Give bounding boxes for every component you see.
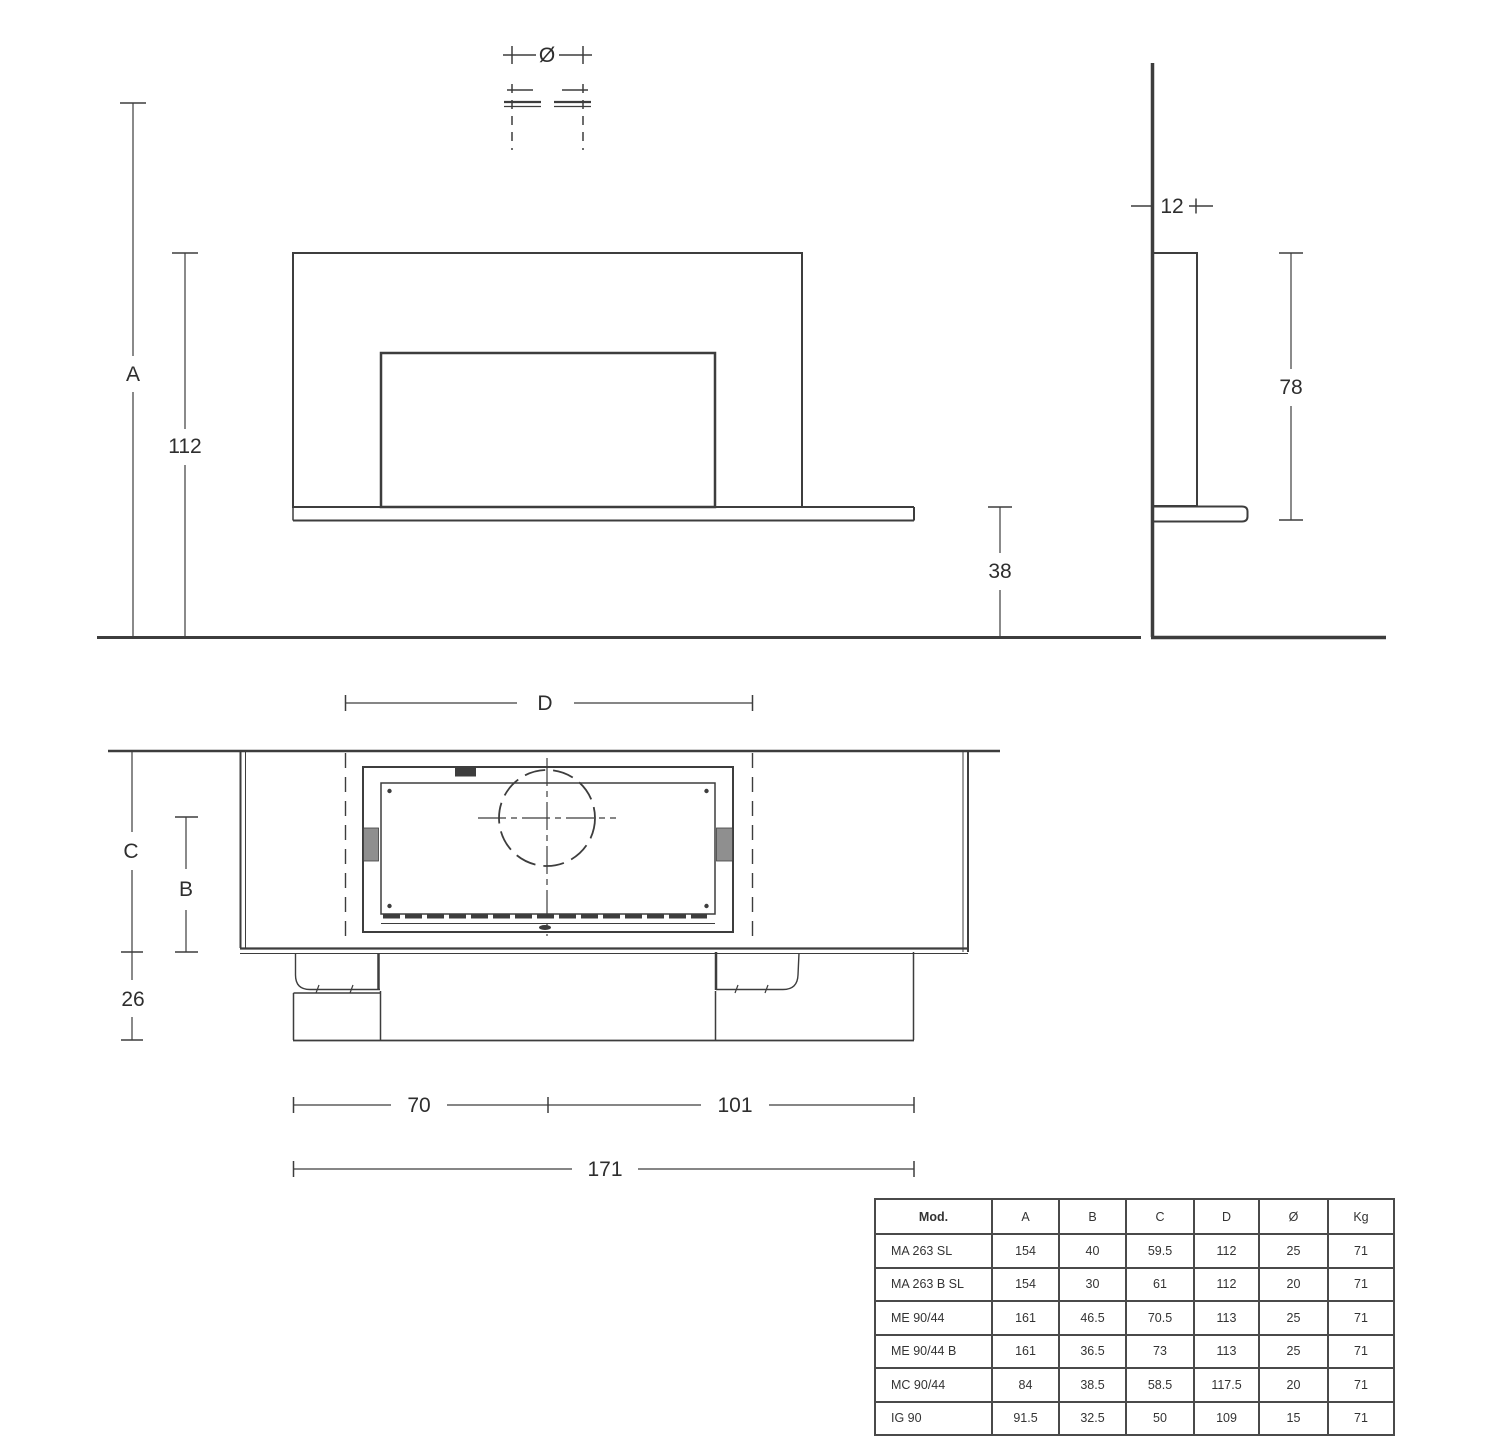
spec-cell: 113 (1194, 1335, 1259, 1369)
plan-view: C 26 B D (108, 692, 1000, 1181)
table-row: MA 263 SL 154 40 59.5 112 25 71 (875, 1234, 1394, 1268)
spec-cell: 58.5 (1126, 1368, 1194, 1402)
dim-label-C: C (123, 840, 138, 863)
flue-pipe (504, 84, 591, 150)
dim-38: 38 (988, 507, 1012, 636)
col-header-D: D (1194, 1199, 1259, 1234)
dim-label-171: 171 (587, 1158, 622, 1181)
spec-cell: 25 (1259, 1234, 1328, 1268)
spec-cell: 71 (1328, 1234, 1394, 1268)
dim-label-38: 38 (988, 560, 1011, 583)
model-cell: ME 90/44 B (875, 1335, 992, 1369)
spec-cell: 38.5 (1059, 1368, 1126, 1402)
col-header-A: A (992, 1199, 1059, 1234)
dim-12: 12 (1131, 195, 1213, 218)
screw-mark (387, 789, 391, 793)
table-row: MC 90/44 84 38.5 58.5 117.5 20 71 (875, 1368, 1394, 1402)
col-header-C: C (1126, 1199, 1194, 1234)
firebox-insulation-hatch (363, 767, 733, 932)
dim-112: 112 (168, 253, 201, 636)
spec-cell: 25 (1259, 1335, 1328, 1369)
side-panel-profile (1152, 253, 1197, 506)
spec-cell: 84 (992, 1368, 1059, 1402)
screw-mark (387, 904, 391, 908)
spec-cell: 20 (1259, 1368, 1328, 1402)
bracket-left (296, 953, 381, 993)
dim-label-78: 78 (1279, 376, 1302, 399)
spec-cell: 109 (1194, 1402, 1259, 1436)
spec-cell: 36.5 (1059, 1335, 1126, 1369)
spec-cell: 61 (1126, 1268, 1194, 1302)
table-row: ME 90/44 B 161 36.5 73 113 25 71 (875, 1335, 1394, 1369)
dim-78: 78 (1279, 253, 1303, 520)
front-panel-outline (293, 253, 802, 507)
model-cell: MC 90/44 (875, 1368, 992, 1402)
side-view: 12 78 (1131, 63, 1386, 638)
spec-table: Mod. A B C D Ø Kg MA 263 SL 154 40 59.5 … (874, 1198, 1395, 1436)
spec-cell: 40 (1059, 1234, 1126, 1268)
col-header-diameter: Ø (1259, 1199, 1328, 1234)
table-header-row: Mod. A B C D Ø Kg (875, 1199, 1394, 1234)
spec-cell: 113 (1194, 1301, 1259, 1335)
side-duct-right (717, 828, 733, 861)
damper-block (455, 768, 476, 777)
screw-mark (704, 904, 708, 908)
table-row: MA 263 B SL 154 30 61 112 20 71 (875, 1268, 1394, 1302)
spec-cell: 59.5 (1126, 1234, 1194, 1268)
dim-A: A (120, 103, 146, 636)
table-row-cutoff: IG 90 91.5 32.5 50 109 15 71 (875, 1402, 1394, 1436)
base-platform-plan (293, 952, 914, 1041)
spec-cell: 20 (1259, 1268, 1328, 1302)
dim-D: D (346, 692, 753, 715)
screw-mark (704, 789, 708, 793)
bracket-right (716, 952, 799, 993)
spec-cell: 91.5 (992, 1402, 1059, 1436)
dim-label-12: 12 (1160, 195, 1183, 218)
spec-cell: 25 (1259, 1301, 1328, 1335)
spec-cell: 15 (1259, 1402, 1328, 1436)
spec-cell: 112 (1194, 1234, 1259, 1268)
spec-cell: 73 (1126, 1335, 1194, 1369)
dim-label-D: D (537, 692, 552, 715)
dim-C-26: C 26 (121, 751, 145, 1040)
spec-cell: 71 (1328, 1402, 1394, 1436)
dim-B: B (175, 817, 198, 952)
model-cell: MA 263 SL (875, 1234, 992, 1268)
dim-label-101: 101 (717, 1094, 752, 1117)
table-row: ME 90/44 161 46.5 70.5 113 25 71 (875, 1301, 1394, 1335)
model-cell: MA 263 B SL (875, 1268, 992, 1302)
spec-cell: 161 (992, 1301, 1059, 1335)
front-view: Ø A 112 (97, 44, 1141, 638)
spec-cell: 161 (992, 1335, 1059, 1369)
spec-cell: 117.5 (1194, 1368, 1259, 1402)
firebox-insert-plan (363, 758, 733, 936)
side-duct-left (364, 828, 379, 861)
dim-label-70: 70 (407, 1094, 430, 1117)
spec-cell: 71 (1328, 1335, 1394, 1369)
spec-cell: 30 (1059, 1268, 1126, 1302)
dim-label-A: A (126, 363, 140, 386)
spec-cell: 71 (1328, 1268, 1394, 1302)
spec-cell: 154 (992, 1268, 1059, 1302)
model-cell: ME 90/44 (875, 1301, 992, 1335)
spec-cell: 32.5 (1059, 1402, 1126, 1436)
dim-label-diameter: Ø (539, 44, 555, 67)
dim-label-26: 26 (121, 988, 144, 1011)
firebox-opening-outline (381, 353, 715, 507)
spec-cell: 50 (1126, 1402, 1194, 1436)
col-header-B: B (1059, 1199, 1126, 1234)
spec-cell: 71 (1328, 1301, 1394, 1335)
spec-cell: 112 (1194, 1268, 1259, 1302)
bench-shelf-front (293, 507, 914, 521)
dim-70-101: 70 101 (294, 1094, 915, 1117)
dim-label-B: B (179, 878, 193, 901)
spec-cell: 154 (992, 1234, 1059, 1268)
dim-171: 171 (294, 1158, 915, 1181)
dim-flue-diameter: Ø (503, 44, 592, 67)
model-cell: IG 90 (875, 1402, 992, 1436)
dim-label-112: 112 (168, 435, 201, 458)
spec-cell: 70.5 (1126, 1301, 1194, 1335)
spec-cell: 71 (1328, 1368, 1394, 1402)
bench-shelf-side (1152, 507, 1248, 522)
centerline-marker (539, 925, 551, 930)
spec-cell: 46.5 (1059, 1301, 1126, 1335)
col-header-kg: Kg (1328, 1199, 1394, 1234)
col-header-mod: Mod. (875, 1199, 992, 1234)
